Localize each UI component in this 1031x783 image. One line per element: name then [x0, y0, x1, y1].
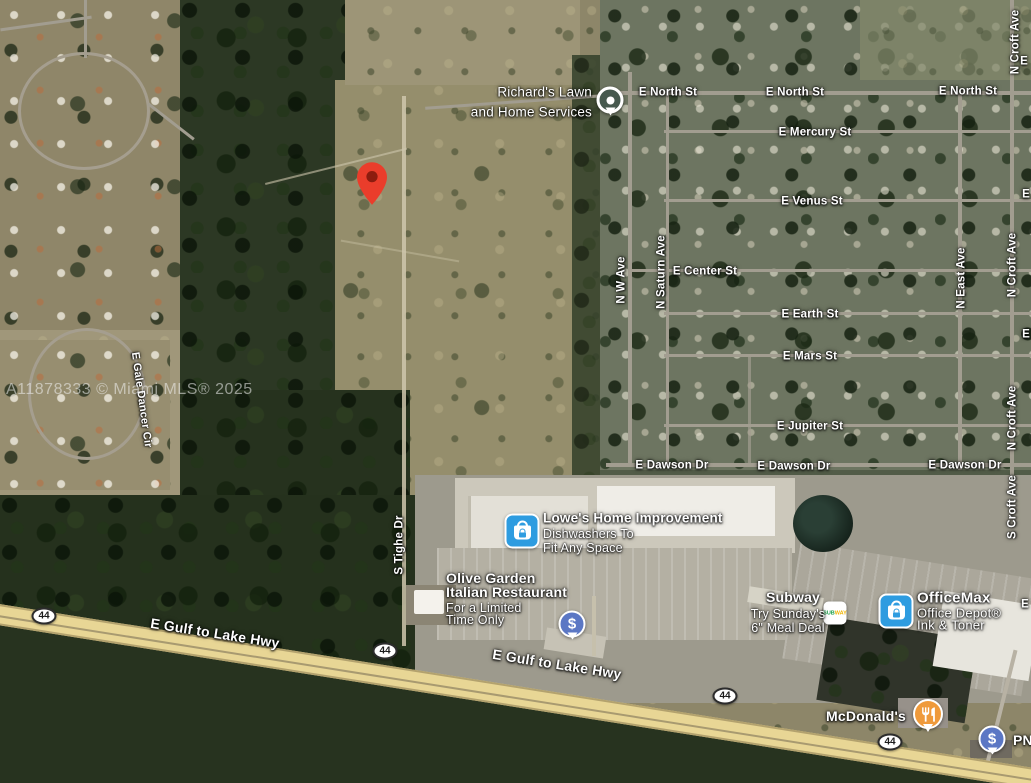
street-label: N Saturn Ave [656, 235, 668, 309]
street-label: E Gulf to Lake Hwy [492, 647, 623, 681]
richards-lawn-and-home-services-label: Richard's Lawn [497, 85, 592, 99]
street-label: E [1022, 329, 1030, 341]
street-label: E Mars St [783, 351, 837, 363]
street-label: E North St [639, 87, 697, 99]
lowes-home-improvement-label: Lowe's Home Improvement [543, 511, 723, 525]
street-label: N East Ave [956, 247, 968, 308]
olive-garden-italian-restaurant-label: Olive Garden [446, 571, 536, 585]
officemax-label: Ink & Toner [917, 619, 985, 632]
officemax-icon[interactable] [879, 594, 914, 629]
mls-watermark: A11878333 © Miami MLS® 2025 [6, 381, 253, 399]
street-label: E North St [939, 86, 997, 98]
street-label: N W Ave [616, 256, 628, 303]
subway-logo-text: WAY [835, 610, 847, 616]
bank-atm-icon[interactable] [559, 611, 586, 638]
street-label: N Croft Ave [1007, 233, 1019, 298]
street-label: E [1021, 599, 1029, 611]
lowes-home-improvement-label: Fit Any Space [543, 542, 623, 555]
street-label: E Mercury St [779, 127, 852, 139]
street-label: N Croft Ave [1007, 386, 1019, 451]
street-label: E Dawson Dr [635, 460, 708, 472]
subway-label: Try Sunday's [751, 608, 826, 621]
street-label: S Croft Ave [1007, 475, 1019, 539]
richards-lawn-and-home-services-icon[interactable] [597, 87, 624, 114]
mcdonalds-label: McDonald's [826, 709, 906, 723]
route-shield-44: 44 [373, 643, 398, 660]
street-label: E Earth St [782, 309, 839, 321]
street-label: E [1020, 56, 1028, 68]
subway-label: 6" Meal Deal [751, 622, 825, 635]
street-label: E Gulf to Lake Hwy [150, 616, 281, 650]
lowes-home-improvement-label: Dishwashers To [543, 528, 634, 541]
subway-icon[interactable]: SUBWAY [824, 602, 847, 625]
street-label: E Dawson Dr [757, 461, 830, 473]
pnc-bank-icon[interactable] [979, 726, 1006, 753]
officemax-label: OfficeMax [917, 591, 991, 606]
olive-garden-italian-restaurant-label: Italian Restaurant [446, 585, 567, 599]
satellite-map[interactable]: E North StE North StE North StE Mercury … [0, 0, 1031, 783]
lowes-home-improvement-icon[interactable] [505, 514, 540, 549]
street-label: E Dawson Dr [928, 460, 1001, 472]
property-pin[interactable] [357, 162, 387, 205]
richards-lawn-and-home-services-label: and Home Services [471, 105, 592, 119]
street-label: E Gale Dancer Cir [129, 352, 153, 449]
street-label: S Tighe Dr [394, 515, 406, 574]
route-shield-44: 44 [878, 734, 903, 751]
street-label: E Jupiter St [777, 421, 843, 433]
subway-label: Subway [766, 590, 820, 604]
olive-garden-italian-restaurant-label: Time Only [446, 614, 504, 627]
route-shield-44: 44 [713, 688, 738, 705]
street-label: E [1022, 189, 1030, 201]
mcdonalds-icon[interactable] [913, 699, 943, 729]
route-shield-44: 44 [32, 608, 57, 625]
street-label: E Venus St [781, 196, 842, 208]
pnc-bank-label: PNC [1013, 733, 1031, 747]
street-label: E Center St [673, 266, 737, 278]
street-label: E North St [766, 87, 824, 99]
